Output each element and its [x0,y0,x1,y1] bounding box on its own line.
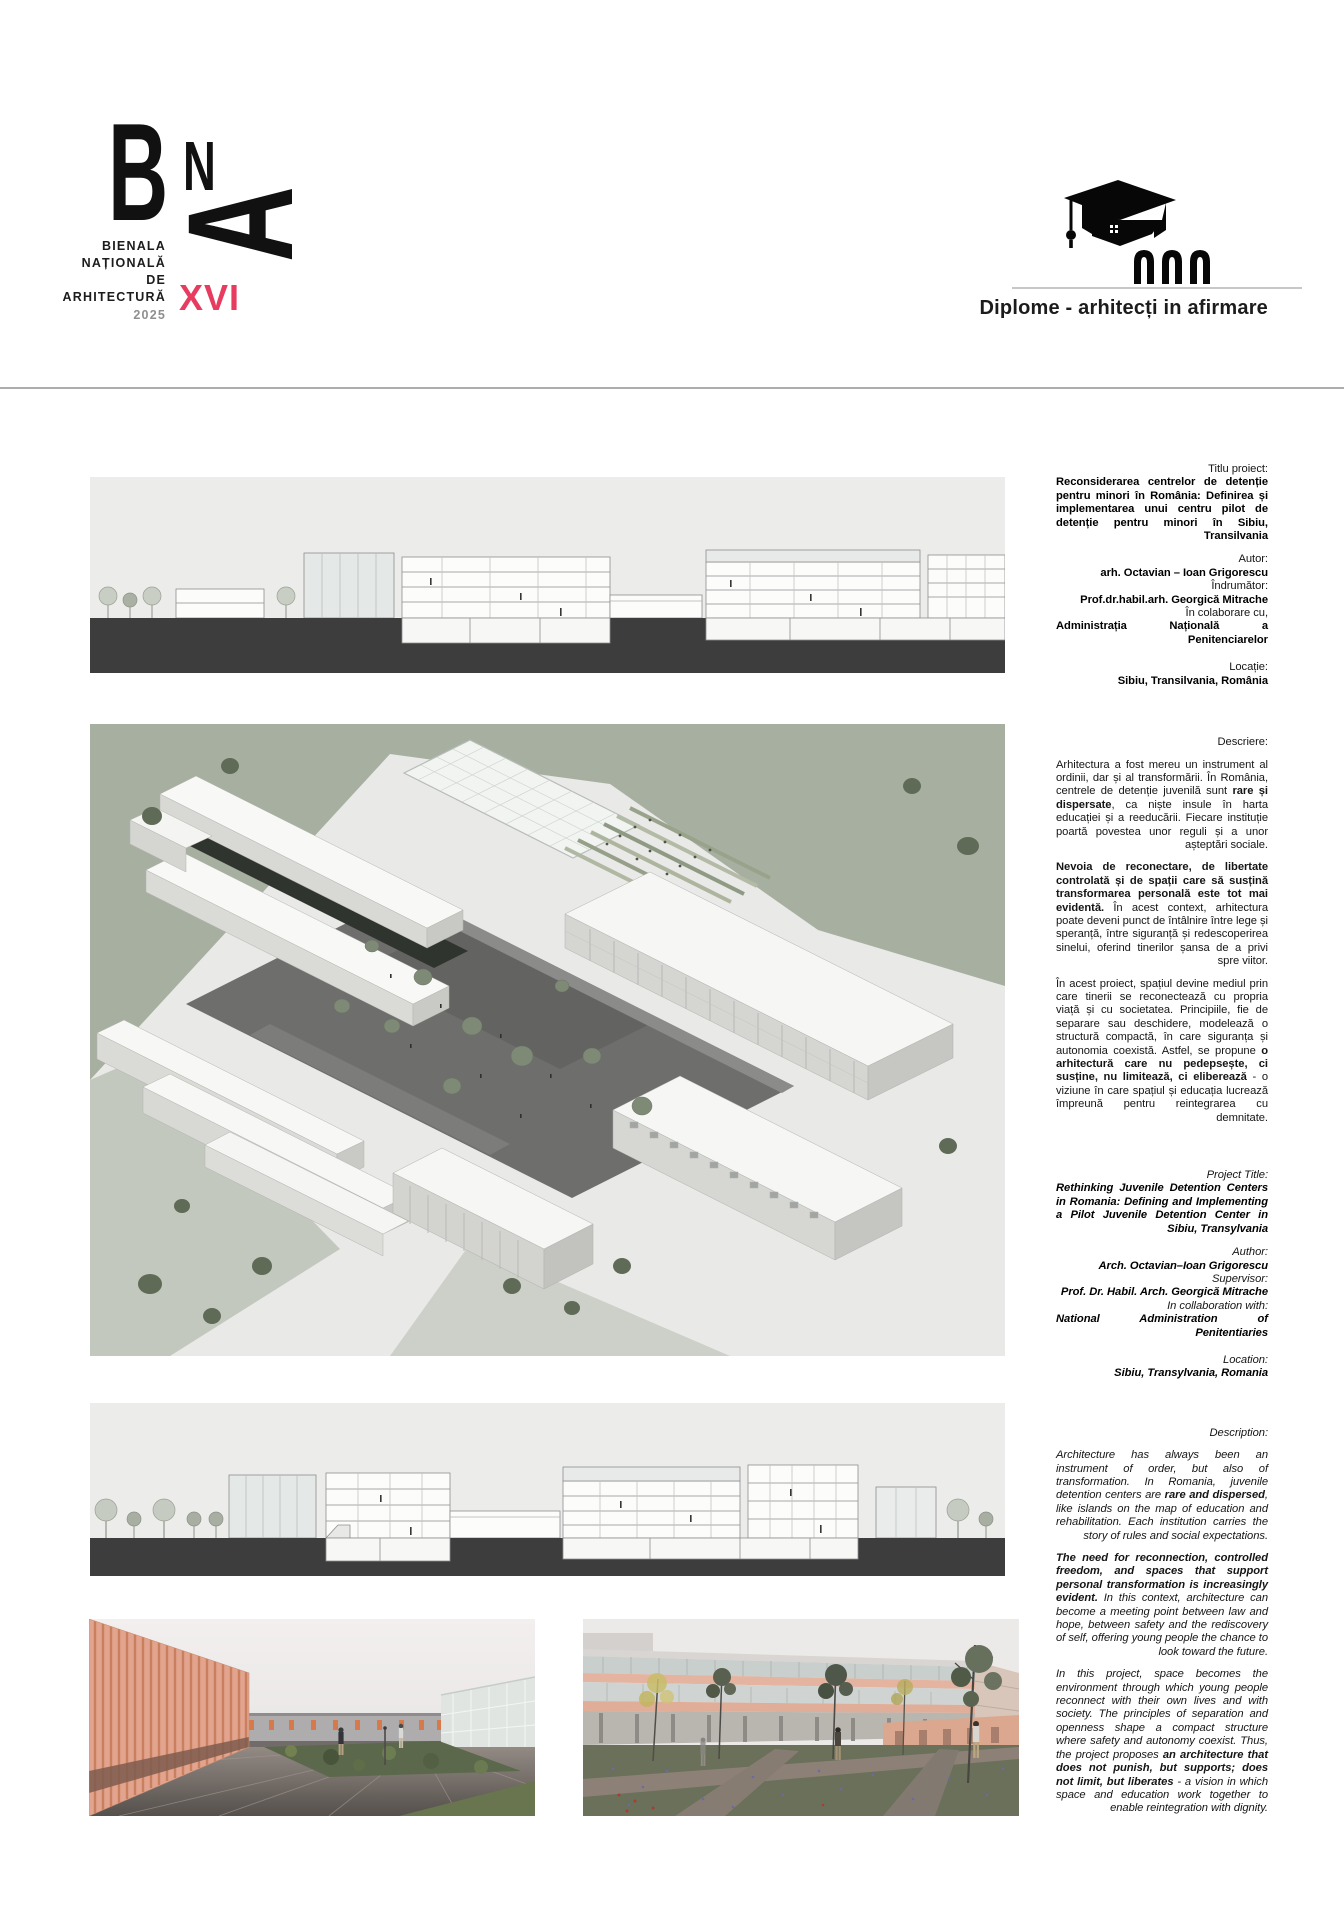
supervisor-label-ro: Îndrumător: [1056,580,1268,593]
description-paragraph-ro: Nevoia de reconectare, de libertate cont… [1056,861,1268,968]
section-drawing-bottom [90,1403,1005,1576]
author-label-en: Author: [1056,1246,1268,1259]
section-basement [326,1538,858,1561]
location-en: Sibiu, Transylvania, Romania [1056,1367,1268,1380]
supervisor-ro: Prof.dr.habil.arh. Georgică Mitrache [1056,594,1268,607]
logo-line: ARHITECTURĂ [40,289,166,306]
competition-poster: B N A BIENALA NAȚIONALĂ DE ARHITECTURĂ 2… [0,0,1344,1920]
project-title-en: Rethinking Juvenile Detention Centers in… [1056,1182,1268,1236]
project-title-label-en: Project Title: [1056,1169,1268,1182]
location-label-ro: Locație: [1056,661,1268,674]
section-drawing-top [90,477,1005,673]
collab-en: National Administration of Penitentiarie… [1056,1313,1268,1340]
description-paragraph-en: In this project, space becomes the envir… [1056,1668,1268,1815]
supervisor-label-en: Supervisor: [1056,1273,1268,1286]
location-ro: Sibiu, Transilvania, România [1056,675,1268,688]
logo-wordmark: BIENALA NAȚIONALĂ DE ARHITECTURĂ 2025 [40,238,166,324]
project-title-label-ro: Titlu proiect: [1056,463,1268,476]
description-paragraph-ro: În acest proiect, spațiul devine mediul … [1056,978,1268,1125]
collab-label-en: In collaboration with: [1056,1300,1268,1313]
description-label-ro: Descriere: [1056,736,1268,749]
category-label: Diplome - arhitecți in afirmare [968,297,1268,320]
location-label-en: Location: [1056,1354,1268,1367]
section-buildings [229,1465,936,1538]
author-ro: arh. Octavian – Ioan Grigorescu [1056,567,1268,580]
description-paragraph-en: Architecture has always been an instrume… [1056,1449,1268,1543]
description-label-en: Description: [1056,1427,1268,1440]
header-divider [0,387,1344,389]
render-meadow-facade [583,1619,1019,1816]
logo-line: BIENALA [40,238,166,255]
edition-number: XVI [179,277,240,319]
graduation-cap-arches-icon [1058,178,1248,286]
description-paragraph-ro: Arhitectura a fost mereu un instrument a… [1056,759,1268,853]
section-ground-band [90,1538,1005,1576]
render-courtyard-path [89,1619,535,1816]
logo-letter-a: A [158,186,320,262]
supervisor-en: Prof. Dr. Habil. Arch. Georgică Mitrache [1056,1286,1268,1299]
arches-icon [1134,250,1210,284]
author-label-ro: Autor: [1056,553,1268,566]
collab-label-ro: În colaborare cu, [1056,607,1268,620]
project-title-ro: Reconsiderarea centrelor de detenție pen… [1056,476,1268,543]
project-info-column: Titlu proiect: Reconsiderarea centrelor … [1056,463,1268,1816]
graduation-cap-icon [1064,180,1176,248]
logo-year: 2025 [40,307,166,324]
logo-line: NAȚIONALĂ [40,255,166,272]
collab-ro: Administrația Națională a Penitenciarelo… [1056,620,1268,647]
description-paragraph-en: The need for reconnection, controlled fr… [1056,1552,1268,1659]
render-meadow [583,1745,1019,1816]
axonometric-site-view [90,724,1005,1356]
logo-line: DE [40,272,166,289]
author-en: Arch. Octavian–Ioan Grigorescu [1056,1260,1268,1273]
category-divider [1012,287,1302,289]
